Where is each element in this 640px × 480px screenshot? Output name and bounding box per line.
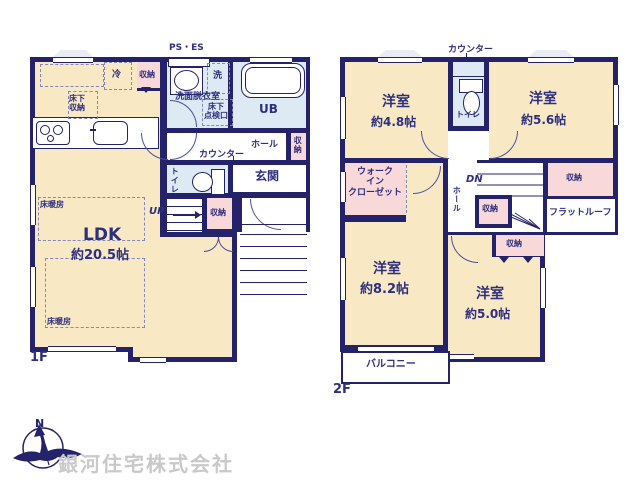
flat-roof-label: フラットルーフ bbox=[549, 208, 611, 218]
stove-burner bbox=[53, 125, 63, 135]
closet-door-mark bbox=[523, 257, 533, 263]
window bbox=[378, 57, 422, 63]
floor1-label: 1F bbox=[30, 351, 48, 366]
window bbox=[30, 185, 36, 225]
dn-label: DN bbox=[466, 174, 483, 186]
stove-burner bbox=[47, 135, 54, 142]
window bbox=[250, 57, 292, 63]
wash-basin-bowl bbox=[174, 70, 199, 91]
window bbox=[528, 57, 574, 63]
counter-label-1f: カウンター bbox=[199, 150, 244, 160]
fridge-label: 冷 bbox=[112, 70, 121, 80]
bedroom-56-name: 洋室 bbox=[529, 91, 557, 107]
bedroom-50-storage-label: 収納 bbox=[506, 239, 522, 248]
floor-heating-label: 床暖房 bbox=[40, 200, 64, 209]
kitchen-sink bbox=[93, 121, 128, 145]
wic-label: ウォーク イン クローゼット bbox=[343, 167, 407, 198]
window-shutter bbox=[528, 50, 574, 57]
window bbox=[53, 57, 93, 63]
up-arrow-head bbox=[195, 211, 201, 219]
toilet-label-1f: トイレ bbox=[170, 167, 179, 194]
toilet-tank-1f bbox=[211, 169, 225, 195]
kitchen-storage-label: 収納 bbox=[139, 70, 155, 79]
floorplan-canvas: PS・ES 冷 収納 床下 収納 洗 洗面脱衣室 床下 点検口 UB ホール 収… bbox=[0, 0, 640, 480]
ldk-size-label: 約20.5帖 bbox=[71, 249, 129, 264]
stairs-storage-label-2f: 収納 bbox=[482, 204, 498, 213]
bedroom-50-name: 洋室 bbox=[476, 286, 504, 302]
compass-north-label: N bbox=[35, 417, 44, 430]
washroom-label: 洗面脱衣室 bbox=[175, 92, 220, 102]
bedroom-82-size: 約8.2帖 bbox=[360, 283, 409, 298]
toilet-counter-line bbox=[453, 76, 484, 77]
stove-burner bbox=[40, 125, 50, 135]
underfloor-storage-label: 床下 収納 bbox=[69, 94, 85, 112]
window bbox=[450, 354, 474, 360]
washer-label: 洗 bbox=[213, 71, 222, 81]
entrance-label: 玄関 bbox=[255, 170, 279, 184]
upper-cabinet-dashed bbox=[40, 64, 104, 87]
hall-label-2f: ホール bbox=[452, 186, 461, 213]
ldk-label: LDK bbox=[83, 226, 121, 246]
bedroom-48-size: 約4.8帖 bbox=[371, 116, 416, 130]
underfloor-hatch-label: 床下 点検口 bbox=[204, 102, 228, 120]
ldk-room bbox=[133, 345, 232, 357]
window bbox=[540, 268, 546, 308]
window-shutter bbox=[53, 50, 93, 57]
up-arrow-line bbox=[173, 215, 195, 216]
window bbox=[340, 97, 346, 139]
window bbox=[48, 346, 116, 352]
hall-label: ホール bbox=[251, 140, 278, 150]
balcony-label: バルコニー bbox=[366, 359, 416, 371]
up-label: UP bbox=[149, 206, 164, 218]
stairs-storage-label: 収納 bbox=[210, 208, 226, 217]
counter-label-2f: カウンター bbox=[448, 45, 493, 55]
bathtub-inner bbox=[245, 67, 301, 94]
bedroom-56-size: 約5.6帖 bbox=[521, 114, 566, 128]
window bbox=[358, 346, 434, 352]
window-shutter bbox=[378, 50, 422, 57]
sink-faucet bbox=[90, 129, 96, 131]
floor2-label: 2F bbox=[333, 383, 351, 398]
window bbox=[613, 85, 619, 125]
hall-2f bbox=[448, 131, 489, 160]
closet-door-mark bbox=[141, 87, 151, 93]
company-name: 銀河住宅株式会社 bbox=[58, 448, 234, 477]
bedroom-48-name: 洋室 bbox=[382, 94, 410, 110]
ps-es-label: PS・ES bbox=[169, 43, 204, 53]
bath-label: UB bbox=[259, 103, 278, 117]
right-storage-label: 収納 bbox=[566, 173, 582, 182]
bedroom-82-name: 洋室 bbox=[373, 261, 401, 277]
window bbox=[30, 267, 36, 307]
bedroom-50-size: 約5.0帖 bbox=[465, 308, 510, 322]
ps-duct-box bbox=[168, 58, 210, 67]
floor-heating-label: 床暖房 bbox=[47, 317, 71, 326]
ldk-room bbox=[160, 237, 232, 345]
toilet-bowl-1f bbox=[192, 172, 213, 192]
window bbox=[340, 258, 346, 300]
porch-step-line bbox=[242, 224, 306, 225]
hall-storage-label: 収納 bbox=[293, 136, 302, 154]
toilet-label-2f: トイレ bbox=[456, 110, 480, 119]
exterior-steps bbox=[240, 234, 307, 296]
window bbox=[140, 357, 166, 363]
closet-door-mark bbox=[499, 257, 509, 263]
